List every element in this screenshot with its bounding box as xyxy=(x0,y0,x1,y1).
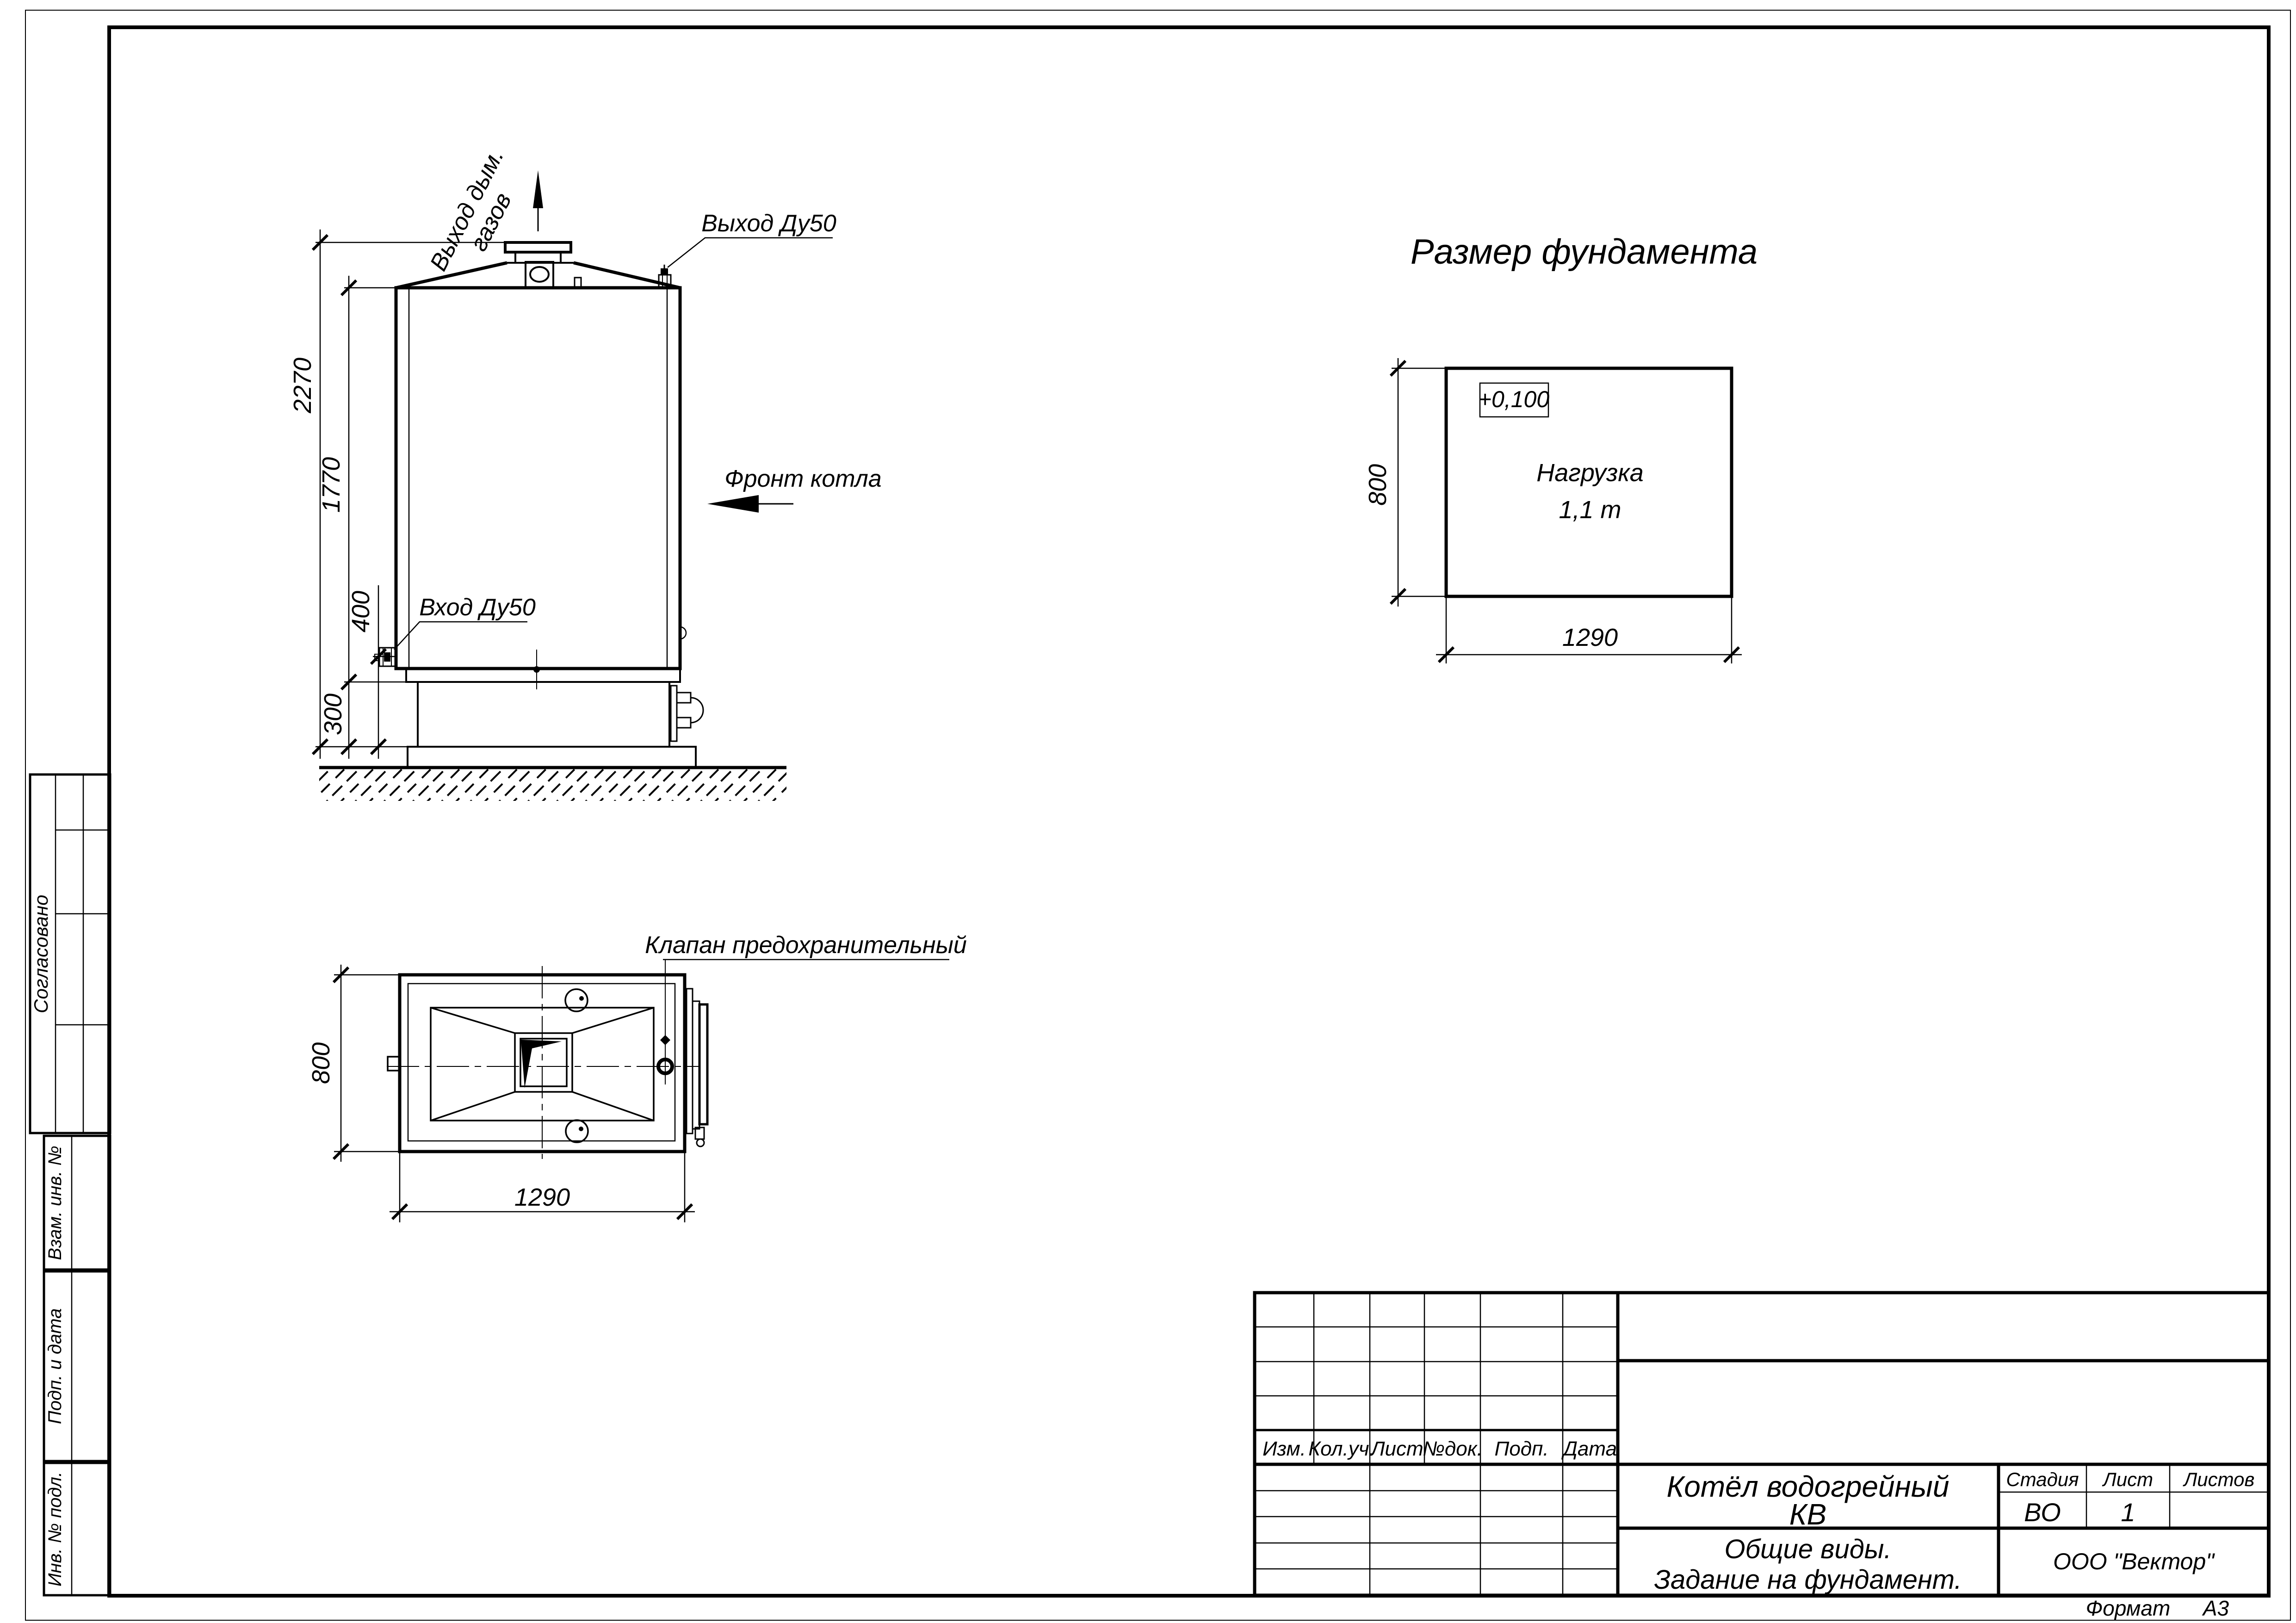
rev-header-list: Лист xyxy=(1369,1437,1423,1460)
boiler-plan-view: Клапан предохранительный 800 1290 xyxy=(307,932,967,1222)
foundation-dim-width: 1290 xyxy=(1562,624,1618,651)
stage-label: Стадия xyxy=(2006,1468,2079,1490)
rev-header-koluch: Кол.уч. xyxy=(1308,1437,1374,1460)
safety-valve-callout: Клапан предохранительный xyxy=(645,932,967,960)
title-block: Изм. Кол.уч. Лист №док. Подп. Дата Котёл… xyxy=(1255,1293,2269,1595)
replace-inv-box: Взам. инв. № xyxy=(44,1136,110,1270)
plan-side-plates xyxy=(687,989,707,1146)
inlet-label: Вход Ду50 xyxy=(419,594,536,621)
approved-box: Согласовано xyxy=(30,774,110,1133)
ground-hatch xyxy=(319,768,786,801)
format-value: А3 xyxy=(2202,1596,2229,1620)
rev-header-podp: Подп. xyxy=(1494,1437,1548,1460)
plan-holes xyxy=(565,989,588,1142)
inv-orig-box: Инв. № подл. xyxy=(44,1463,110,1595)
safety-valve xyxy=(658,960,672,1084)
safety-valve-label: Клапан предохранительный xyxy=(645,932,967,959)
sheet-label: Лист xyxy=(2102,1468,2153,1490)
dim-body-height: 1770 xyxy=(317,457,345,513)
dim-inlet-height: 400 xyxy=(347,591,375,632)
sheet-value: 1 xyxy=(2121,1498,2135,1527)
doc-name-line2: КВ xyxy=(1789,1498,1826,1531)
sign-date-box: Подп. и дата xyxy=(44,1271,110,1461)
side-piping xyxy=(671,686,703,741)
boiler-body xyxy=(396,288,686,689)
foundation-plan: Размер фундамента +0,100 Нагрузка 1,1 т … xyxy=(1364,232,1758,663)
sign-date-label: Подп. и дата xyxy=(45,1308,65,1424)
company-name: ООО "Вектор" xyxy=(2053,1549,2215,1574)
inlet-callout: Вход Ду50 xyxy=(394,594,536,650)
doc-type-line2: Задание на фундамент. xyxy=(1654,1565,1962,1595)
drawing-sheet: Выход дым. газов Выход Ду50 Вход Ду50 Фр… xyxy=(0,0,2296,1623)
load-label-line2: 1,1 т xyxy=(1559,496,1621,524)
load-label-line1: Нагрузка xyxy=(1536,459,1644,487)
drawing-canvas: Выход дым. газов Выход Ду50 Вход Ду50 Фр… xyxy=(0,0,2296,1623)
replace-inv-label: Взам. инв. № xyxy=(45,1146,65,1260)
plan-view-dimensions: 800 1290 xyxy=(307,965,695,1222)
sheets-label: Листов xyxy=(2183,1468,2255,1490)
foundation-title: Размер фундамента xyxy=(1411,232,1758,272)
format-label: Формат xyxy=(2086,1596,2171,1620)
chimney-opening xyxy=(515,1033,572,1092)
foundation-dimensions: 800 1290 xyxy=(1364,358,1742,663)
sheet-frame xyxy=(25,10,2290,1620)
rev-header-data: Дата xyxy=(1561,1437,1617,1460)
dim-overall-height: 2270 xyxy=(289,358,316,414)
front-label: Фронт котла xyxy=(724,465,881,492)
left-attribute-column: Согласовано Взам. инв. № Подп. и дата Ин… xyxy=(30,774,110,1595)
rev-header-ndok: №док. xyxy=(1423,1437,1482,1460)
foundation-dim-depth: 800 xyxy=(1364,464,1392,506)
inv-orig-label: Инв. № подл. xyxy=(45,1472,65,1586)
plan-dim-width: 1290 xyxy=(514,1183,570,1211)
outlet-label: Выход Ду50 xyxy=(701,210,836,237)
stage-value: ВО xyxy=(2024,1498,2061,1527)
boiler-base xyxy=(406,669,696,768)
outlet-callout: Выход Ду50 xyxy=(668,210,836,267)
flue-arrow-icon xyxy=(533,170,543,231)
approved-label: Согласовано xyxy=(30,895,52,1013)
level-mark: +0,100 xyxy=(1478,383,1550,417)
level-mark-value: +0,100 xyxy=(1478,386,1550,412)
doc-type-line1: Общие виды. xyxy=(1724,1534,1891,1564)
plan-dim-depth: 800 xyxy=(307,1042,335,1084)
rev-header-izm: Изм. xyxy=(1262,1437,1306,1460)
boiler-front-view: Выход дым. газов Выход Ду50 Вход Ду50 Фр… xyxy=(289,144,882,801)
boiler-front-callout: Фронт котла xyxy=(707,465,882,513)
format-note: Формат А3 xyxy=(2086,1596,2229,1620)
dim-base-height: 300 xyxy=(319,694,347,735)
